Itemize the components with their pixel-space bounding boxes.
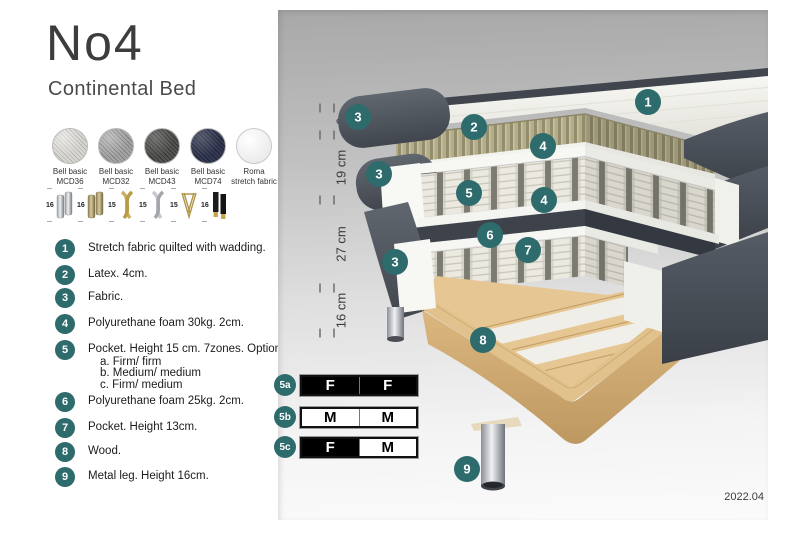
firmness-bar: M M — [300, 407, 418, 428]
svg-text:4: 4 — [540, 193, 548, 208]
list-item: 9 Metal leg. Height 16cm. — [55, 467, 209, 487]
part-text: Metal leg. Height 16cm. — [88, 467, 209, 482]
svg-text:8: 8 — [479, 333, 486, 348]
part-text: Latex. 4cm. — [88, 265, 147, 280]
list-item: 7 Pocket. Height 13cm. — [55, 418, 197, 438]
base-cut-face-left — [394, 239, 436, 313]
firmness-row-badge: 5c — [274, 436, 296, 458]
part-number-badge: 7 — [55, 418, 75, 438]
callout-badge: 3 — [382, 249, 408, 275]
pocket-options: a. Firm/ firm b. Medium/ medium c. Firm/… — [100, 357, 201, 391]
svg-text:9: 9 — [463, 462, 470, 477]
part-text: Polyurethane foam 30kg. 2cm. — [88, 314, 244, 329]
firmness-cell: M — [302, 409, 359, 426]
svg-text:1: 1 — [644, 95, 651, 110]
svg-text:4: 4 — [539, 139, 547, 154]
callout-badge: 4 — [530, 133, 556, 159]
part-text: Pocket. Height 15 cm. 7zones. Option: — [88, 340, 284, 355]
metal-leg-center — [471, 417, 522, 491]
part-number-badge: 9 — [55, 467, 75, 487]
part-text: Fabric. — [88, 288, 123, 303]
firmness-cell: M — [359, 409, 417, 426]
part-text: Stretch fabric quilted with wadding. — [88, 239, 266, 254]
list-item: 1 Stretch fabric quilted with wadding. — [55, 239, 266, 259]
part-number-badge: 3 — [55, 288, 75, 308]
svg-text:6: 6 — [486, 228, 493, 243]
callout-badge: 3 — [366, 161, 392, 187]
pocket-option: b. Medium/ medium — [100, 368, 201, 379]
part-number-badge: 1 — [55, 239, 75, 259]
metal-leg-left — [387, 307, 404, 342]
pocket-option: c. Firm/ medium — [100, 380, 201, 391]
firmness-cell: F — [359, 377, 417, 394]
base-cut-face-right — [624, 261, 662, 332]
firmness-cell: F — [302, 439, 359, 456]
part-number-badge: 6 — [55, 392, 75, 412]
callout-badge: 7 — [515, 237, 541, 263]
firmness-row-badge: 5b — [274, 406, 296, 428]
list-item: 2 Latex. 4cm. — [55, 265, 147, 285]
callout-badge: 9 — [454, 456, 480, 482]
product-sheet: No4 Continental Bed Bell basicMCD36 Bell… — [0, 0, 800, 533]
part-number-badge: 8 — [55, 442, 75, 462]
part-text: Polyurethane foam 25kg. 2cm. — [88, 392, 244, 407]
firmness-row: 5b M M — [274, 406, 418, 428]
list-item: 3 Fabric. — [55, 288, 123, 308]
part-number-badge: 5 — [55, 340, 75, 360]
list-item: 8 Wood. — [55, 442, 121, 462]
callout-badge: 8 — [470, 327, 496, 353]
callout-badge: 1 — [635, 89, 661, 115]
list-item: 6 Polyurethane foam 25kg. 2cm. — [55, 392, 244, 412]
svg-text:3: 3 — [375, 167, 382, 182]
firmness-cell: M — [359, 439, 417, 456]
dimension-label: 27 cm — [334, 226, 349, 261]
svg-text:3: 3 — [354, 110, 361, 125]
part-number-badge: 2 — [55, 265, 75, 285]
product-info-column: No4 Continental Bed Bell basicMCD36 Bell… — [0, 0, 278, 533]
part-text: Pocket. Height 13cm. — [88, 418, 197, 433]
firmness-row: 5a F F — [274, 374, 418, 396]
bed-cutaway-panel: 6 19 cm 27 cm 16 cm — [278, 10, 768, 520]
svg-text:5: 5 — [465, 186, 472, 201]
firmness-bar: F F — [300, 375, 418, 396]
callout-badge: 5 — [456, 180, 482, 206]
firmness-cell: F — [302, 377, 359, 394]
firmness-bar: F M — [300, 437, 418, 458]
list-item: 4 Polyurethane foam 30kg. 2cm. — [55, 314, 244, 334]
svg-text:7: 7 — [524, 243, 531, 258]
svg-text:2: 2 — [470, 120, 477, 135]
callout-badge: 2 — [461, 114, 487, 140]
callout-badge: 4 — [531, 187, 557, 213]
firmness-row-badge: 5a — [274, 374, 296, 396]
parts-list: 1 Stretch fabric quilted with wadding. 2… — [0, 0, 278, 533]
firmness-row: 5c F M — [274, 436, 418, 458]
callout-badge: 6 — [477, 222, 503, 248]
dimension-label: 19 cm — [334, 150, 349, 185]
svg-text:3: 3 — [391, 255, 398, 270]
part-number-badge: 4 — [55, 314, 75, 334]
base-fabric-right — [662, 232, 768, 364]
dimension-label: 16 cm — [334, 293, 349, 328]
part-text: Wood. — [88, 442, 121, 457]
dimension-ruler — [320, 104, 334, 338]
callout-badge: 3 — [345, 104, 371, 130]
version-label: 2022.04 — [724, 491, 764, 503]
